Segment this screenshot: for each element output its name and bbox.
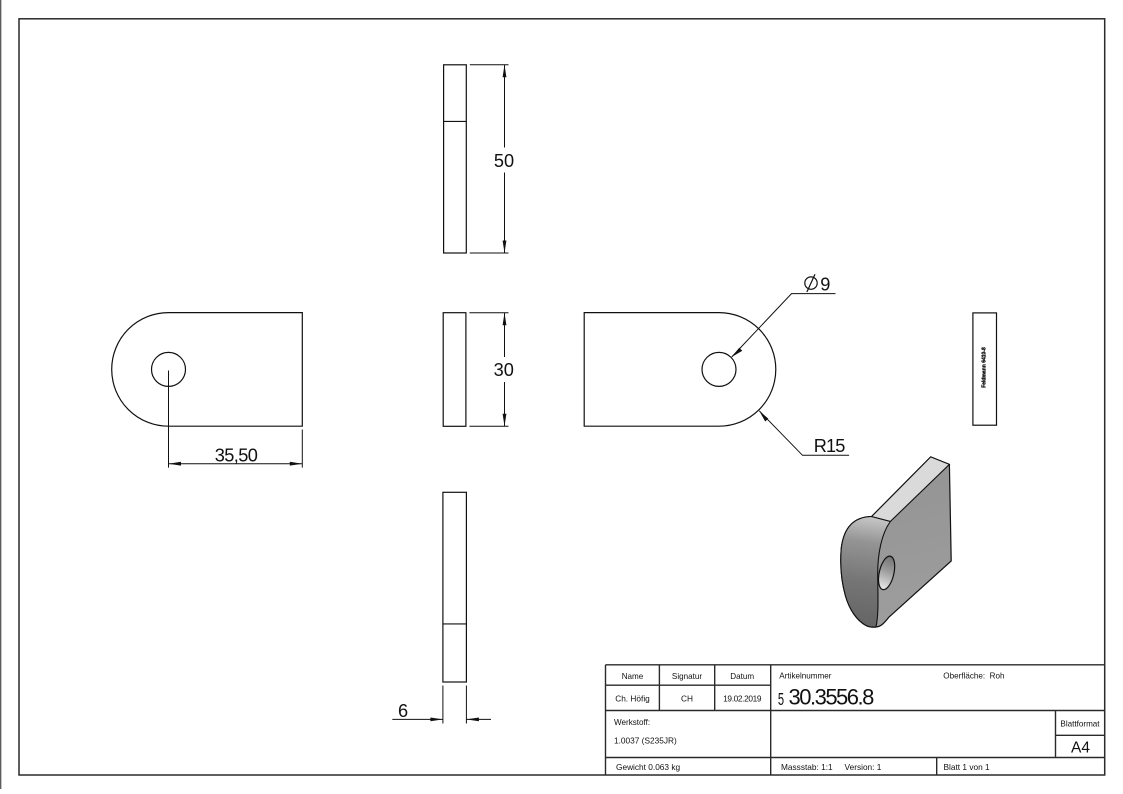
svg-text:Feldmann 6410-8: Feldmann 6410-8 bbox=[982, 347, 988, 388]
svg-text:Blattformat: Blattformat bbox=[1060, 719, 1100, 728]
svg-text:Gewicht 0.063 kg: Gewicht 0.063 kg bbox=[616, 762, 680, 772]
svg-text:Artikelnummer: Artikelnummer bbox=[779, 672, 831, 681]
svg-text:Name: Name bbox=[622, 672, 644, 681]
svg-text:Ch. Höfig: Ch. Höfig bbox=[615, 694, 650, 704]
svg-text:Signatur: Signatur bbox=[672, 672, 702, 681]
svg-text:CH: CH bbox=[681, 694, 693, 704]
svg-text:9: 9 bbox=[820, 274, 830, 294]
svg-text:35,50: 35,50 bbox=[215, 445, 258, 465]
svg-text:50: 50 bbox=[494, 151, 514, 171]
svg-text:Version: 1: Version: 1 bbox=[845, 762, 882, 772]
svg-text:R15: R15 bbox=[814, 436, 845, 456]
svg-text:Datum: Datum bbox=[730, 672, 754, 681]
svg-text:6: 6 bbox=[398, 701, 408, 721]
svg-text:Oberfläche: Roh: Oberfläche: Roh bbox=[943, 672, 1004, 681]
svg-text:30.3556.8: 30.3556.8 bbox=[789, 684, 875, 709]
svg-text:19.02.2019: 19.02.2019 bbox=[723, 694, 762, 704]
svg-text:30: 30 bbox=[494, 360, 514, 380]
svg-text:A4: A4 bbox=[1071, 740, 1090, 757]
svg-text:Massstab: 1:1: Massstab: 1:1 bbox=[781, 762, 833, 772]
svg-text:1.0037 (S235JR): 1.0037 (S235JR) bbox=[614, 736, 677, 746]
svg-text:Werkstoff:: Werkstoff: bbox=[614, 718, 650, 727]
svg-text:5: 5 bbox=[778, 690, 784, 710]
svg-text:Blatt 1 von 1: Blatt 1 von 1 bbox=[944, 762, 991, 772]
